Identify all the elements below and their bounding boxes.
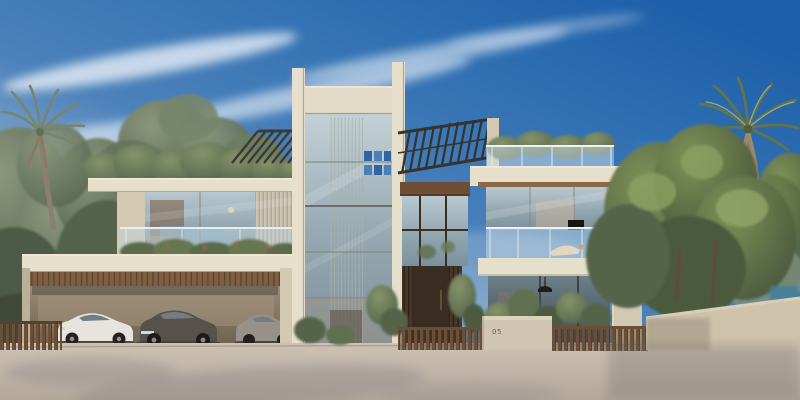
street-wall-number: 05 <box>482 316 552 350</box>
left-wing <box>88 178 303 262</box>
carport <box>22 254 302 347</box>
wooden-fence-left <box>0 322 62 350</box>
tower-header-band <box>302 86 394 114</box>
carport-roof-slab <box>22 254 302 272</box>
left-wing-fascia <box>88 178 302 192</box>
carport-timber-ceiling <box>30 272 280 286</box>
scene-canvas: 05 <box>0 0 800 400</box>
roof-terrace-balustrade <box>486 146 614 168</box>
carport-pillar <box>280 268 294 346</box>
wooden-fence-entrance <box>398 328 483 350</box>
villa-rendering: 05 <box>0 0 800 400</box>
timber-canopy <box>400 182 470 196</box>
house-number: 05 <box>492 328 502 336</box>
